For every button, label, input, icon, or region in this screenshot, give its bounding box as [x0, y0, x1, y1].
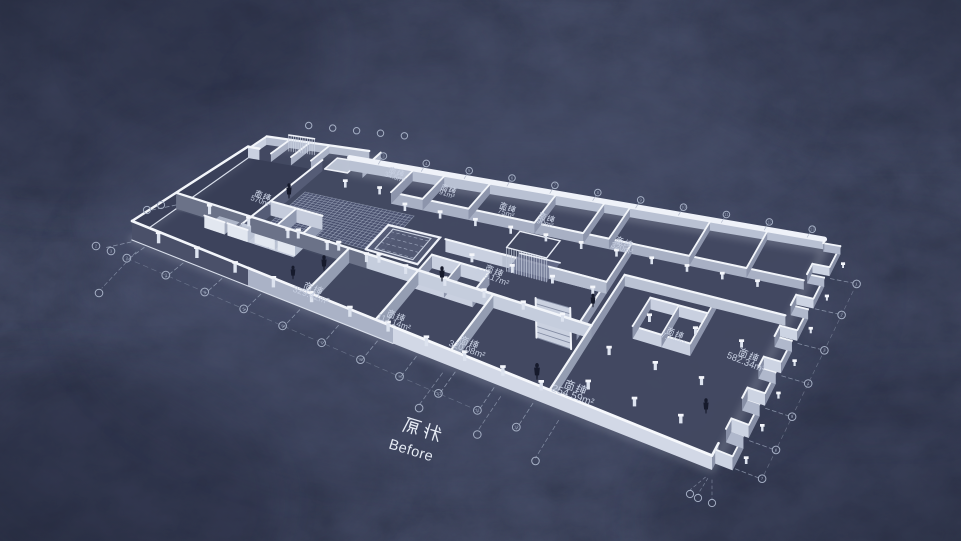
svg-text:12: 12: [767, 219, 772, 224]
svg-text:10: 10: [436, 391, 441, 396]
svg-text:12: 12: [514, 425, 519, 430]
svg-text:11: 11: [724, 212, 729, 217]
svg-text:10: 10: [681, 205, 686, 210]
svg-text:13: 13: [810, 227, 815, 232]
